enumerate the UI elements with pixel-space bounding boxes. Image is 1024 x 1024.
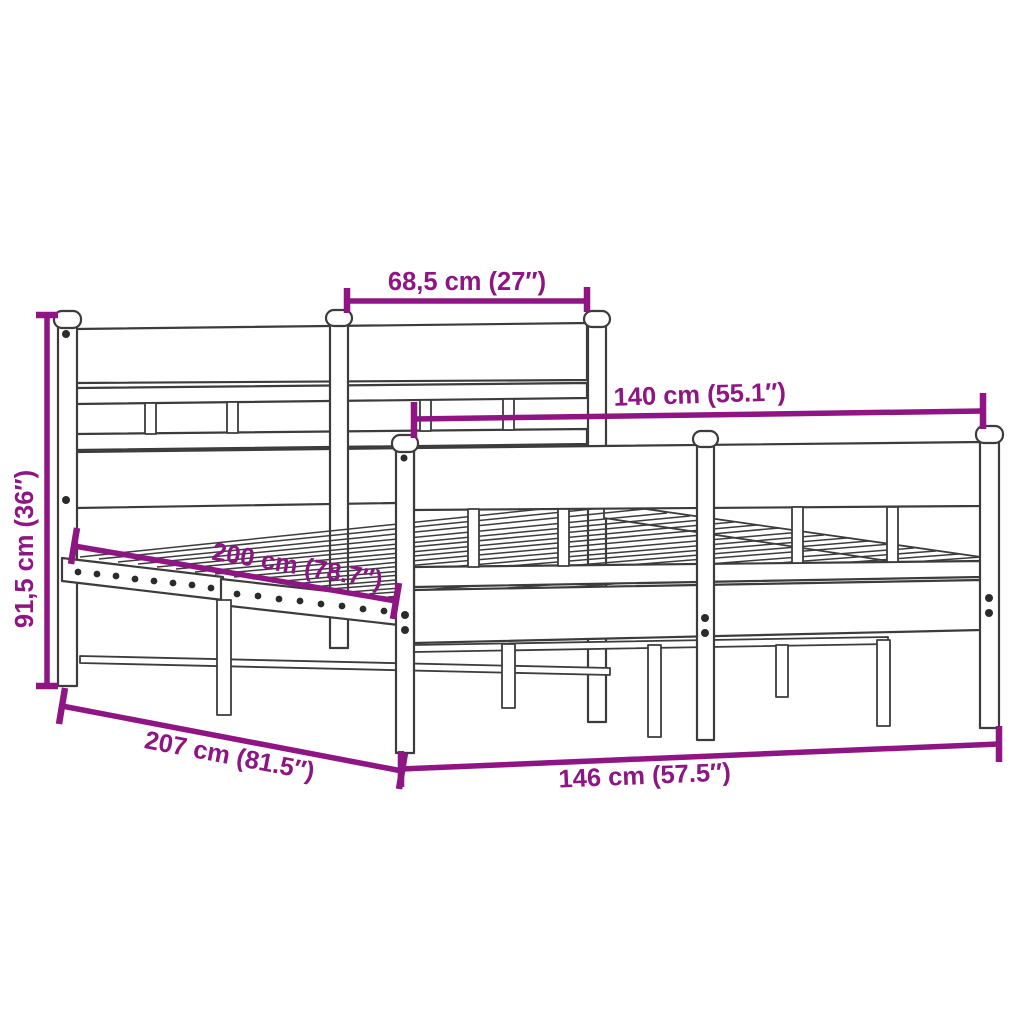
dimension-label-frame-length: 207 cm (81.5″) <box>142 726 317 786</box>
dimension-frame-length: 207 cm (81.5″) <box>59 688 405 789</box>
dimension-label-frame-width: 146 cm (57.5″) <box>558 758 731 793</box>
headboard-left-post-cap <box>54 311 81 328</box>
dimension-headboard-section-width: 68,5 cm (27″) <box>347 268 587 313</box>
dimension-label-headboard-height: 91,5 cm (36″) <box>11 470 39 628</box>
left-stretcher-bar <box>80 656 610 675</box>
dimension-headboard-height: 91,5 cm (36″) <box>11 315 58 686</box>
footboard-right-post <box>980 441 999 728</box>
headboard-right-post <box>588 322 606 722</box>
dimension-label-bed-width: 140 cm (55.1″) <box>613 378 786 411</box>
headboard-right-post-cap <box>584 311 610 327</box>
bed-frame-dimension-diagram: 68,5 cm (27″) 140 cm (55.1″) 91,5 cm (36… <box>0 0 1024 1024</box>
footboard <box>392 426 1003 753</box>
footboard-center-post <box>697 446 714 740</box>
dimension-label-headboard-section-width: 68,5 cm (27″) <box>388 268 546 296</box>
footboard-center-post-cap <box>693 431 718 447</box>
headboard-left-post <box>58 326 77 686</box>
